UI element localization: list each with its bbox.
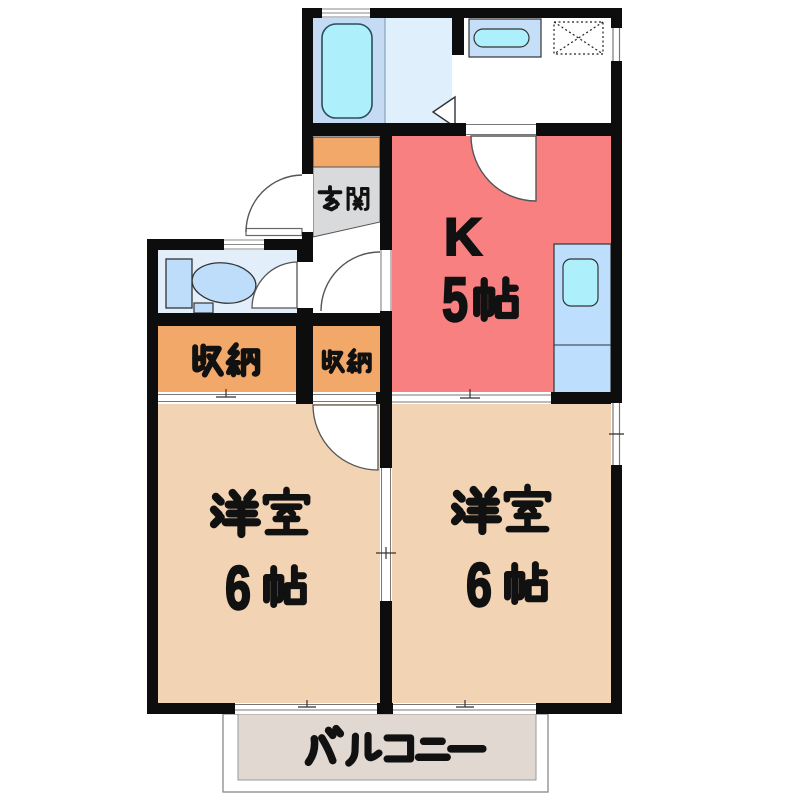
svg-text:K: K: [444, 208, 482, 267]
svg-text:6: 6: [466, 552, 492, 620]
svg-text:6: 6: [225, 555, 251, 623]
svg-text:5: 5: [442, 264, 468, 334]
